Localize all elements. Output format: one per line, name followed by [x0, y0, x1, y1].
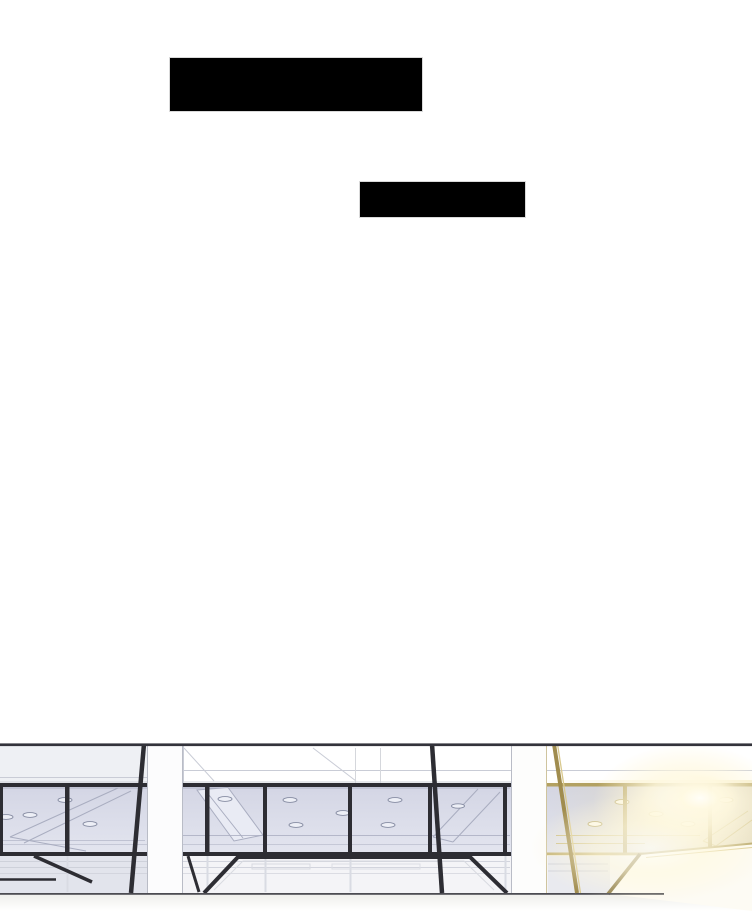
top-edge-line [0, 743, 752, 746]
webtoon-page: { "page": { "type": "webtoon-panel", "ba… [0, 0, 752, 911]
ground-line [0, 893, 664, 895]
censor-box-2 [359, 181, 526, 218]
building-illustration [0, 740, 752, 911]
censor-box-1 [169, 57, 423, 112]
